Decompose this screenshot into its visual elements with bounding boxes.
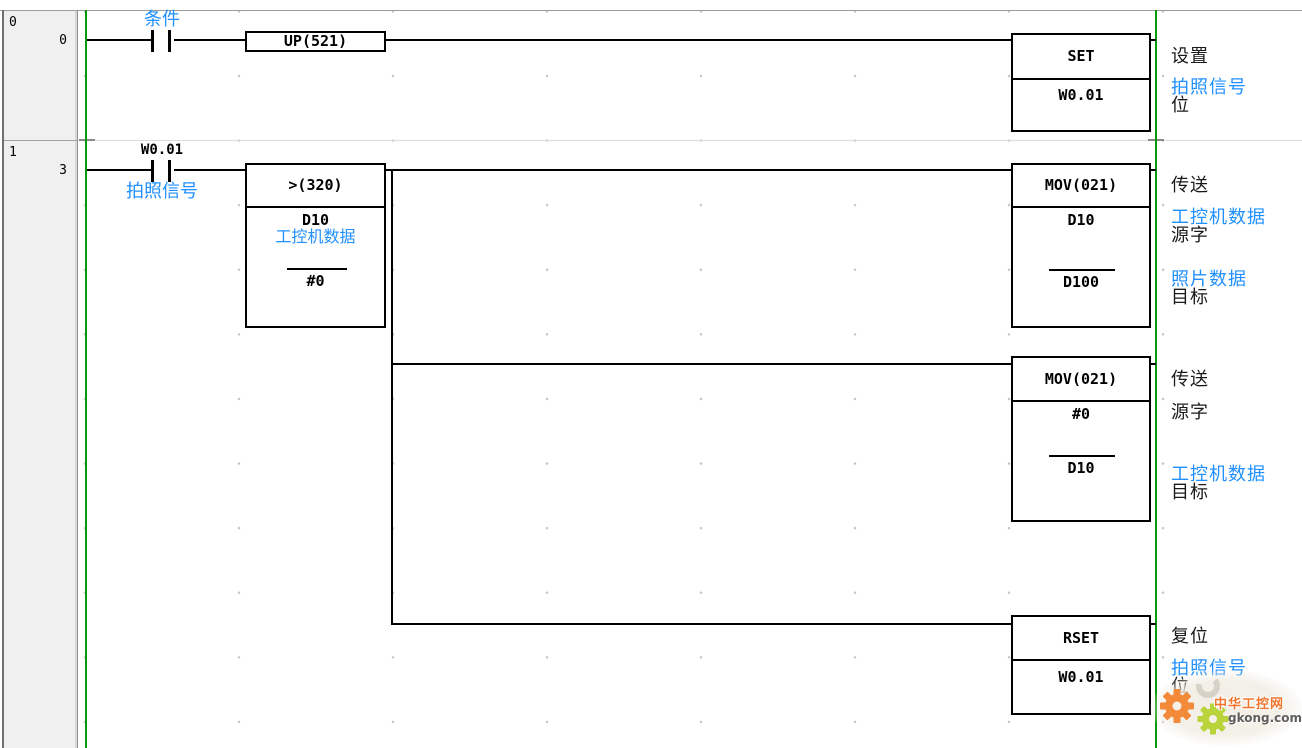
wire [174, 39, 245, 41]
annotation-src-word: 源字 [1171, 227, 1209, 245]
branch-wire [391, 363, 1011, 365]
rung-number: 1 [9, 145, 17, 160]
rung-step-number: 0 [59, 33, 67, 48]
operand: #0 [1013, 406, 1149, 422]
operand-comment: 工控机数据 [247, 228, 384, 246]
contact-condition[interactable] [148, 28, 176, 54]
instruction-title: RSET [1013, 617, 1149, 661]
instruction-title: >(320) [247, 165, 384, 208]
contact-bar [168, 160, 171, 182]
annotation-operation: 传送 [1171, 371, 1209, 389]
instruction-box-compare[interactable]: >(320) D10 工控机数据 #0 [245, 163, 386, 328]
instruction-box-mov2[interactable]: MOV(021) #0 D10 [1011, 356, 1151, 522]
rung-separator [78, 140, 1302, 141]
instruction-title: SET [1013, 35, 1149, 80]
branch-wire-vertical [391, 169, 393, 625]
instruction-box-up[interactable]: UP(521) [245, 31, 386, 52]
operand-separator [1049, 455, 1115, 457]
annotation-operation: 传送 [1171, 177, 1209, 195]
wire [1149, 39, 1156, 41]
operand: D10 [1013, 460, 1149, 476]
rung-header-cell-0[interactable]: 0 0 [4, 11, 77, 140]
watermark: 中华工控网 gkong.com [1150, 670, 1302, 746]
rung-header-cell-1[interactable]: 1 3 [4, 141, 77, 748]
wire [1149, 169, 1156, 171]
watermark-site-name: 中华工控网 [1214, 693, 1284, 712]
operand: W0.01 [1013, 669, 1149, 685]
wire [174, 169, 245, 171]
wire [1149, 363, 1156, 365]
contact-address: W0.01 [110, 143, 214, 157]
watermark-site-domain: gkong.com [1228, 711, 1302, 725]
instruction-box-mov1[interactable]: MOV(021) D10 D100 [1011, 163, 1151, 328]
wire [87, 169, 151, 171]
annotation-dst-word: 目标 [1171, 484, 1209, 502]
rung-separator-tick-left [79, 139, 95, 141]
wire [386, 39, 1011, 41]
orange-gear-icon [1160, 689, 1194, 723]
operand: D100 [1013, 274, 1149, 290]
rung-step-number: 3 [59, 163, 67, 178]
instruction-title: MOV(021) [1013, 358, 1149, 402]
annotation-operation: 复位 [1171, 628, 1209, 646]
ladder-editor: 0 0 1 3 条件 UP(521) SET W0.01 设置 拍照信号 位 W… [0, 0, 1302, 748]
instruction-box-rset[interactable]: RSET W0.01 [1011, 615, 1151, 715]
operand: W0.01 [1013, 87, 1149, 103]
contact-comment: 条件 [110, 11, 214, 29]
operand-separator [1049, 269, 1115, 271]
wire [386, 169, 1011, 171]
annotation-bit-word: 位 [1171, 97, 1190, 115]
operand: D10 [1013, 212, 1149, 228]
rung-header-column: 0 0 1 3 [4, 11, 78, 748]
contact-bar [151, 160, 154, 182]
instruction-title: MOV(021) [1013, 165, 1149, 208]
rung-number: 0 [9, 15, 17, 30]
rung-separator-header [4, 140, 78, 141]
operand: #0 [247, 273, 384, 289]
wire [1149, 623, 1156, 625]
annotation-dst-word: 目标 [1171, 289, 1209, 307]
operand: D10 [247, 212, 384, 228]
instruction-title: UP(521) [247, 33, 384, 50]
operand-separator [287, 268, 347, 270]
annotation-src-word: 源字 [1171, 404, 1209, 422]
branch-wire [391, 623, 1011, 625]
right-bus-bar [1155, 10, 1157, 748]
contact-bar [151, 30, 154, 52]
contact-bar [168, 30, 171, 52]
left-bus-bar [85, 10, 87, 748]
contact-comment: 拍照信号 [100, 183, 224, 201]
instruction-box-set[interactable]: SET W0.01 [1011, 33, 1151, 132]
annotation-operation: 设置 [1171, 48, 1209, 66]
wire [87, 39, 151, 41]
